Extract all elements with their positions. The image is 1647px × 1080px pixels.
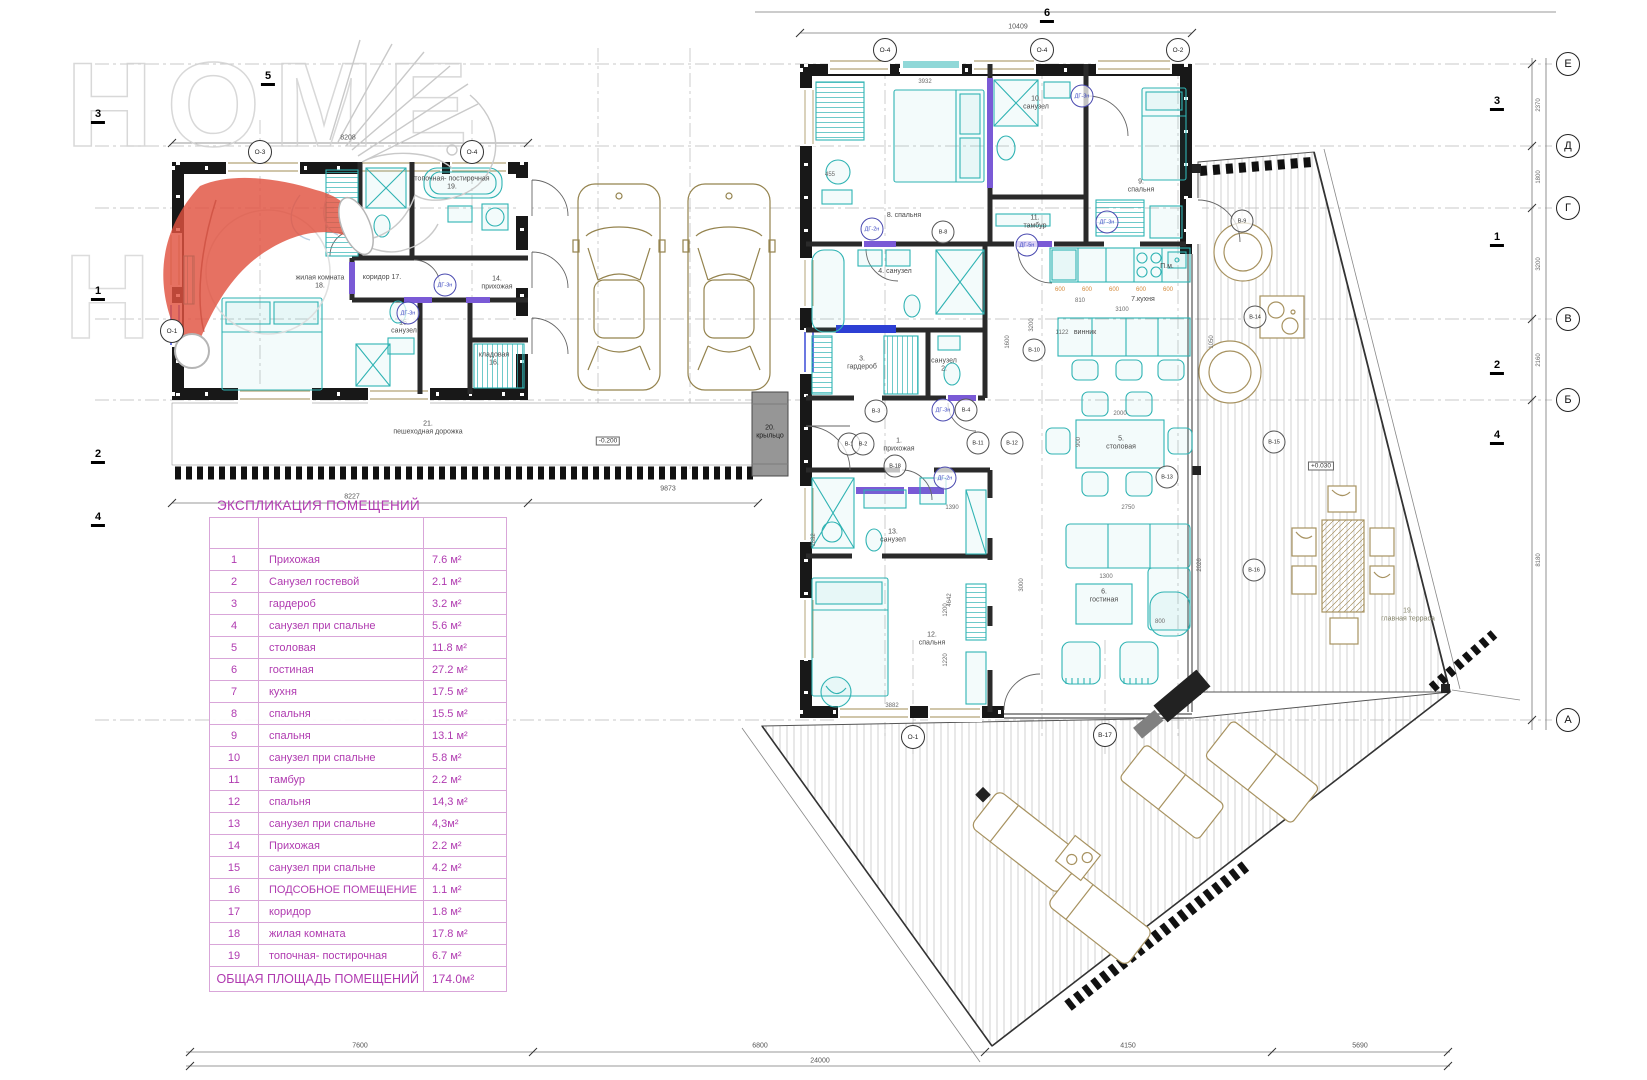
grid-axis-letter-b: Б: [1556, 388, 1580, 412]
grid-axis-letter-v: В: [1556, 307, 1580, 331]
door-marker: ДГ-3н: [434, 274, 457, 297]
axis-circle: О-1: [901, 725, 925, 749]
legend-row: 8спальня15.5 м²: [210, 703, 507, 725]
axis-circle: О-2: [1166, 38, 1190, 62]
porch: [752, 392, 788, 476]
grid-axis-letter-e: Е: [1556, 52, 1580, 76]
door-marker: ДГ-5н: [1016, 234, 1039, 257]
legend-row: 5столовая11.8 м²: [210, 637, 507, 659]
section-mark-4-right: 4: [1490, 429, 1504, 445]
window-marker: В-16: [1243, 559, 1266, 582]
section-mark-2-left: 2: [91, 448, 105, 464]
legend-row: 11тамбур2.2 м²: [210, 769, 507, 791]
legend-row: 16ПОДСОБНОЕ ПОМЕЩЕНИЕ1.1 м²: [210, 879, 507, 901]
door-marker: ДГ-2н: [861, 218, 884, 241]
window-marker: В-14: [1244, 306, 1267, 329]
door-marker: ДГ-2н: [934, 467, 957, 490]
axis-circle: В-17: [1093, 723, 1117, 747]
window-marker: В-9: [1231, 210, 1254, 233]
section-mark-5: 5: [261, 70, 275, 86]
grid-axis-letter-d: Д: [1556, 134, 1580, 158]
legend-total-row: ОБЩАЯ ПЛОЩАДЬ ПОМЕЩЕНИЙ174.0м²: [210, 967, 507, 992]
legend-title: ЭКСПЛИКАЦИЯ ПОМЕЩЕНИЙ: [217, 498, 481, 513]
section-mark-4-left: 4: [91, 511, 105, 527]
window-marker: В-11: [967, 432, 990, 455]
legend-row: 18жилая комната17.8 м²: [210, 923, 507, 945]
window-marker: В-10: [1023, 339, 1046, 362]
legend-row: 10санузел при спальне5.8 м²: [210, 747, 507, 769]
section-mark-6: 6: [1040, 7, 1054, 23]
window-marker: В-4: [955, 399, 978, 422]
legend-row: 7кухня17.5 м²: [210, 681, 507, 703]
door-marker: ДГ-3н: [1096, 211, 1119, 234]
legend-table: ЭКСПЛИКАЦИЯ ПОМЕЩЕНИЙ 1Прихожая7.6 м² 2С…: [209, 498, 481, 992]
legend-row: 1Прихожая7.6 м²: [210, 549, 507, 571]
section-mark-3-left: 3: [91, 108, 105, 124]
grid-axis-letter-g: Г: [1556, 196, 1580, 220]
legend-header-row: [210, 518, 507, 549]
axis-circle: О-1: [160, 319, 184, 343]
grid-axis-letter-a: А: [1556, 708, 1580, 732]
legend-row: 15санузел при спальне4.2 м²: [210, 857, 507, 879]
section-mark-2-right: 2: [1490, 359, 1504, 375]
axis-circle: О-4: [873, 38, 897, 62]
axis-circle: О-3: [248, 140, 272, 164]
section-mark-1-left: 1: [91, 285, 105, 301]
section-mark-1-right: 1: [1490, 231, 1504, 247]
window-marker: В-13: [1156, 466, 1179, 489]
legend-row: 3гардероб3.2 м²: [210, 593, 507, 615]
elevation-terrace: +0.030: [1308, 462, 1334, 471]
elevation-walkway: -0.200: [596, 437, 620, 446]
window-marker: В-8: [932, 221, 955, 244]
legend-row: 4санузел при спальне5.6 м²: [210, 615, 507, 637]
window-marker: В-12: [1001, 432, 1024, 455]
legend-row: 2Санузел гостевой2.1 м²: [210, 571, 507, 593]
floorplan-canvas: HOME H жилая комната 18. коридор 17. 15.…: [0, 0, 1647, 1080]
window-marker: В-15: [1263, 431, 1286, 454]
legend-row: 17коридор1.8 м²: [210, 901, 507, 923]
door-marker: ДГ-3н: [1071, 85, 1094, 108]
axis-circle: О-4: [460, 140, 484, 164]
legend-row: 19топочная- постирочная6.7 м²: [210, 945, 507, 967]
legend-row: 6гостиная27.2 м²: [210, 659, 507, 681]
legend-row: 13санузел при спальне4,3м²: [210, 813, 507, 835]
axis-circle: О-4: [1030, 38, 1054, 62]
section-mark-3-right: 3: [1490, 95, 1504, 111]
window-marker: В-2: [852, 433, 875, 456]
svg-text:H: H: [64, 230, 151, 364]
legend-row: 9спальня13.1 м²: [210, 725, 507, 747]
door-marker: ДГ-3н: [397, 302, 420, 325]
window-marker: В-18: [884, 455, 907, 478]
window-marker: В-3: [865, 400, 888, 423]
walkway: [172, 403, 758, 473]
legend-row: 14Прихожая2.2 м²: [210, 835, 507, 857]
door-marker: ДГ-3н: [932, 399, 955, 422]
legend-row: 12спальня14,3 м²: [210, 791, 507, 813]
car-icon: [573, 184, 775, 390]
